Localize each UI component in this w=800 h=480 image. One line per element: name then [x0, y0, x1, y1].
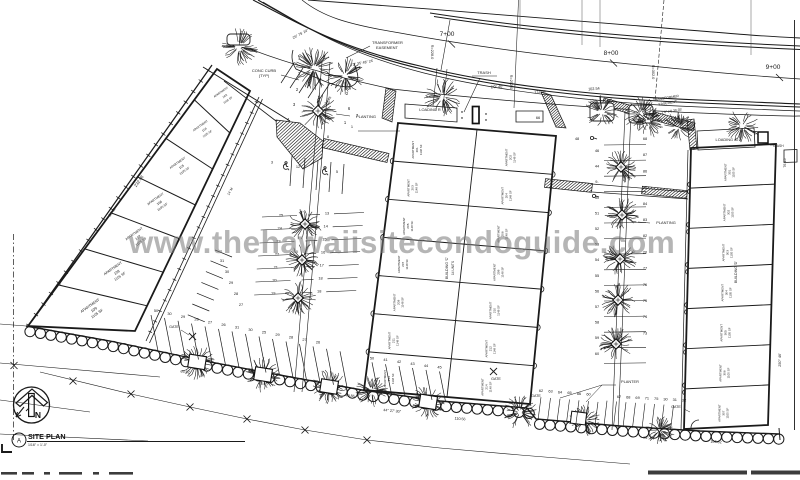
svg-text:(TYP): (TYP)	[259, 73, 270, 78]
svg-text:1148 SF: 1148 SF	[405, 259, 409, 270]
svg-text:12: 12	[296, 164, 300, 169]
svg-text:1105 SF: 1105 SF	[725, 408, 729, 419]
svg-text:18: 18	[318, 276, 322, 281]
svg-text:27: 27	[302, 337, 306, 342]
svg-text:60: 60	[586, 392, 591, 397]
svg-text:LOADING #2: LOADING #2	[716, 137, 739, 142]
svg-text:28: 28	[289, 334, 293, 339]
svg-text:N: N	[35, 410, 41, 420]
svg-text:250° 46': 250° 46'	[778, 353, 782, 367]
svg-text:30: 30	[248, 327, 253, 332]
svg-text:45: 45	[437, 364, 441, 369]
svg-text:44° 27' 30": 44° 27' 30"	[383, 408, 402, 414]
svg-text:42: 42	[397, 359, 401, 364]
svg-text:102.54: 102.54	[588, 87, 600, 92]
svg-text:44: 44	[595, 164, 600, 169]
svg-text:EASEMENT: EASEMENT	[376, 45, 399, 50]
svg-text:GATE: GATE	[671, 405, 681, 409]
svg-text:www.thehawaiisitecondoguide.co: www.thehawaiisitecondoguide.com	[128, 224, 675, 260]
svg-text:64: 64	[558, 389, 563, 394]
svg-text:64.62: 64.62	[180, 370, 190, 375]
svg-text:68: 68	[643, 136, 647, 141]
svg-text:1148 SF: 1148 SF	[489, 381, 493, 392]
svg-text:66: 66	[536, 115, 540, 120]
svg-text:43.05: 43.05	[258, 382, 268, 387]
svg-text:58: 58	[595, 320, 599, 325]
svg-text:1105 SF: 1105 SF	[732, 167, 736, 178]
svg-text:83: 83	[643, 217, 647, 222]
svg-text:86: 86	[643, 168, 647, 173]
svg-text:68: 68	[626, 395, 630, 400]
svg-text:74: 74	[643, 314, 648, 319]
svg-text:87: 87	[643, 152, 647, 157]
svg-text:73: 73	[643, 330, 647, 335]
svg-text:3: 3	[293, 102, 296, 107]
svg-text:14 UNITS: 14 UNITS	[451, 261, 455, 275]
svg-text:29: 29	[275, 332, 279, 337]
svg-text:30: 30	[167, 311, 172, 316]
svg-text:PLANTER: PLANTER	[621, 379, 639, 384]
svg-text:57: 57	[595, 304, 599, 309]
svg-text:1148 SF: 1148 SF	[501, 267, 505, 278]
svg-text:9-: 9-	[595, 179, 599, 184]
svg-text:84: 84	[643, 201, 648, 206]
svg-text:2'6" (4) 30.35': 2'6" (4) 30.35'	[661, 107, 683, 114]
svg-text:25: 25	[262, 329, 266, 334]
svg-text:1148 SF: 1148 SF	[509, 190, 513, 201]
svg-text:6: 6	[348, 106, 351, 111]
svg-text:60: 60	[595, 351, 600, 356]
svg-text:2'0" 40': 2'0" 40'	[491, 85, 504, 90]
svg-text:1: 1	[344, 120, 347, 125]
svg-text:85: 85	[643, 185, 647, 190]
svg-text:1148 SF: 1148 SF	[513, 152, 517, 163]
svg-text:59: 59	[595, 335, 599, 340]
svg-text:5: 5	[336, 169, 338, 174]
svg-text:1'2" 35' 48" 24': 1'2" 35' 48" 24'	[350, 59, 374, 67]
svg-text:31: 31	[235, 324, 239, 329]
svg-text:75: 75	[654, 396, 658, 401]
svg-text:8+00: 8+00	[604, 50, 619, 57]
svg-text:1105 SF: 1105 SF	[729, 287, 733, 298]
svg-text:1105 SF: 1105 SF	[728, 327, 732, 338]
svg-text:27: 27	[239, 302, 243, 307]
svg-text:26: 26	[316, 339, 320, 344]
svg-text:2: 2	[296, 87, 299, 92]
svg-text:43: 43	[410, 361, 414, 366]
svg-text:PLANTING: PLANTING	[356, 114, 376, 119]
svg-text:1148 SF: 1148 SF	[391, 373, 395, 384]
svg-text:67: 67	[617, 394, 621, 399]
svg-text:8: 8	[327, 134, 329, 139]
svg-text:26° 75' 24": 26° 75' 24"	[292, 28, 310, 40]
svg-text:13: 13	[325, 211, 329, 216]
svg-text:50: 50	[154, 308, 159, 313]
svg-text:R=228.0: R=228.0	[430, 45, 434, 59]
svg-text:9+00: 9+00	[766, 64, 781, 71]
svg-text:GATE: GATE	[491, 377, 501, 381]
svg-text:84° 5': 84° 5'	[643, 436, 653, 440]
svg-text:A: A	[17, 439, 21, 445]
svg-text:BUILDING 'C': BUILDING 'C'	[445, 257, 449, 279]
svg-text:GATE: GATE	[531, 394, 541, 398]
svg-text:1/16" = 1'-0": 1/16" = 1'-0"	[28, 443, 48, 447]
svg-text:110.56: 110.56	[454, 417, 465, 422]
svg-text:27: 27	[208, 319, 212, 324]
svg-text:1148 SF: 1148 SF	[493, 343, 497, 354]
svg-text:32: 32	[682, 398, 686, 403]
svg-text:29: 29	[229, 280, 233, 285]
svg-text:28: 28	[234, 291, 238, 296]
svg-text:1105 SF: 1105 SF	[726, 367, 730, 378]
svg-text:49.86: 49.86	[345, 394, 355, 399]
svg-text:76: 76	[643, 282, 647, 287]
svg-text:TRASH: TRASH	[477, 70, 491, 75]
svg-text:77: 77	[643, 266, 647, 271]
svg-text:46: 46	[595, 148, 599, 153]
svg-text:1105 SF: 1105 SF	[731, 207, 735, 218]
svg-text:26: 26	[221, 322, 225, 327]
svg-text:R=302.0: R=302.0	[651, 65, 655, 79]
svg-text:55: 55	[595, 273, 599, 278]
svg-text:3: 3	[271, 160, 273, 165]
svg-text:62: 62	[539, 388, 543, 393]
svg-text:105.82: 105.82	[710, 440, 721, 445]
svg-text:18: 18	[317, 289, 321, 294]
svg-text:1148 SF: 1148 SF	[415, 182, 419, 193]
svg-text:19: 19	[271, 291, 275, 296]
svg-text:1148 SF: 1148 SF	[419, 144, 423, 155]
svg-text:TRASH: TRASH	[772, 144, 784, 148]
svg-text:1105 SF: 1105 SF	[730, 247, 734, 258]
svg-text:1148 SF: 1148 SF	[396, 335, 400, 346]
svg-text:71: 71	[645, 396, 649, 401]
svg-text:29: 29	[181, 314, 185, 319]
svg-text:51: 51	[595, 210, 599, 215]
svg-text:28: 28	[194, 317, 198, 322]
svg-text:56: 56	[595, 288, 599, 293]
svg-text:1148 SF: 1148 SF	[497, 305, 501, 316]
svg-text:14' M: 14' M	[226, 187, 234, 196]
svg-text:1148 SF: 1148 SF	[400, 297, 404, 308]
svg-text:BUILDING 'D': BUILDING 'D'	[734, 261, 738, 283]
svg-text:SITE PLAN: SITE PLAN	[28, 432, 66, 441]
svg-text:30: 30	[225, 269, 230, 274]
svg-text:21: 21	[274, 265, 278, 270]
svg-text:2: 2	[346, 91, 349, 96]
svg-text:69: 69	[635, 395, 639, 400]
svg-text:44: 44	[424, 363, 429, 368]
svg-text:20: 20	[272, 278, 277, 283]
svg-text:31: 31	[673, 397, 677, 402]
svg-text:63: 63	[548, 389, 552, 394]
svg-text:41: 41	[383, 357, 387, 362]
svg-text:17: 17	[320, 263, 324, 268]
svg-text:1: 1	[351, 124, 353, 129]
svg-text:75: 75	[643, 298, 647, 303]
svg-text:25: 25	[279, 213, 283, 218]
svg-text:48: 48	[575, 136, 579, 141]
svg-text:LOADING R: LOADING R	[419, 107, 441, 112]
svg-text:30: 30	[663, 397, 668, 402]
svg-text:GATE: GATE	[169, 325, 179, 329]
svg-text:50: 50	[370, 355, 375, 360]
